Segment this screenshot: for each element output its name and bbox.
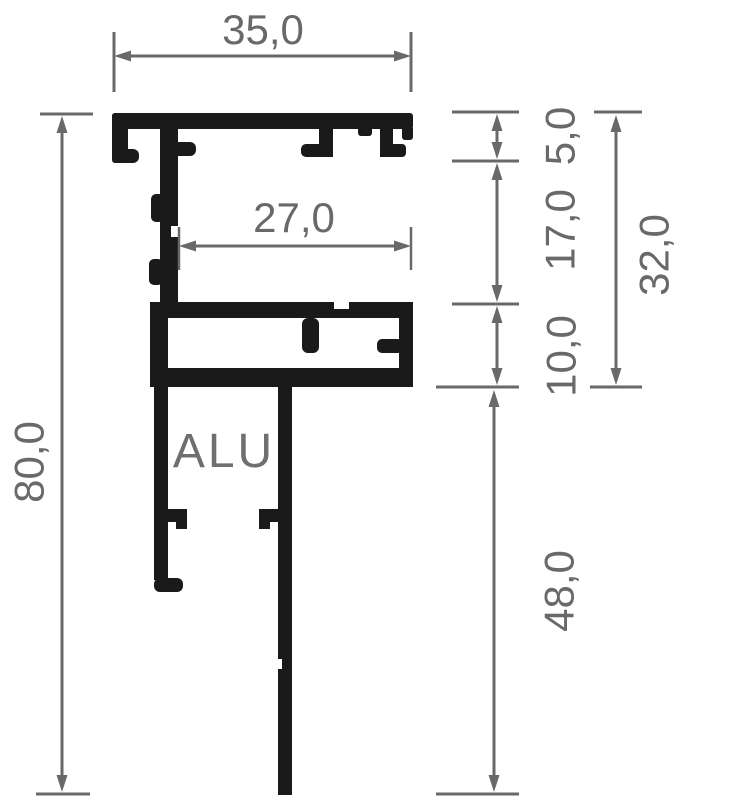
arrow-up-icon <box>489 390 500 407</box>
profile-mid-hook-tip <box>377 339 403 353</box>
arrow-down-icon <box>611 368 622 385</box>
arrow-left-icon <box>179 241 196 252</box>
dim-top-width: 35,0 <box>114 6 411 92</box>
arrow-right-icon <box>394 51 411 62</box>
profile-tslot-foot-right <box>380 144 406 157</box>
dim-label-inner-width: 27,0 <box>253 194 335 241</box>
profile-lower-left-wall <box>154 382 168 580</box>
arrow-up-icon <box>57 116 68 133</box>
dim-label-top-width: 35,0 <box>222 6 304 53</box>
arrow-down-icon <box>492 285 503 302</box>
profile-mid-hanging-tab <box>302 318 319 353</box>
profile-wall-nub <box>160 142 196 156</box>
technical-drawing-canvas: 35,0 27,0 80,0 <box>0 0 736 800</box>
profile-wall-bulge-upper <box>151 194 164 222</box>
dim-inner-width: 27,0 <box>179 194 411 270</box>
profile-drawing: 35,0 27,0 80,0 <box>0 0 736 800</box>
profile-lower-left-foot <box>154 578 183 592</box>
arrow-down-icon <box>492 142 503 159</box>
dim-label-upper-height: 17,0 <box>536 189 583 271</box>
profile-tslot-nub <box>358 126 372 136</box>
arrow-up-icon <box>492 114 503 131</box>
arrow-down-icon <box>492 368 503 385</box>
arrow-down-icon <box>57 775 68 792</box>
arrow-left-icon <box>114 51 131 62</box>
dim-label-upper-total: 32,0 <box>630 214 677 296</box>
profile-tslot-foot-left <box>301 144 333 157</box>
arrow-up-icon <box>611 115 622 132</box>
dim-lower-height: 48,0 <box>436 390 582 794</box>
profile-mid-top-bar <box>150 302 413 318</box>
dim-right-stack: 5,0 17,0 10,0 <box>436 107 584 397</box>
profile-mid-bar-notch <box>334 302 349 309</box>
profile-right-lip <box>402 126 413 140</box>
profile-snap-tab-right-foot <box>259 509 270 529</box>
dim-total-height: 80,0 <box>5 114 93 794</box>
arrow-right-icon <box>394 241 411 252</box>
dim-label-mid-height: 10,0 <box>537 315 584 397</box>
dim-upper-total: 32,0 <box>590 112 677 387</box>
profile-snap-tab-left-foot <box>176 509 187 529</box>
arrow-up-icon <box>492 163 503 180</box>
profile-left-hook-toe <box>112 149 139 163</box>
dim-label-lower-height: 48,0 <box>535 550 582 632</box>
arrow-up-icon <box>492 306 503 323</box>
arrow-down-icon <box>489 775 500 792</box>
dim-label-total-height: 80,0 <box>5 421 52 503</box>
profile-leg-notch <box>278 659 282 669</box>
dim-label-lip-height: 5,0 <box>536 107 583 165</box>
profile-right-leg <box>278 382 292 795</box>
profile-wall-bulge-lower <box>149 259 163 285</box>
material-label: ALU <box>173 425 275 478</box>
